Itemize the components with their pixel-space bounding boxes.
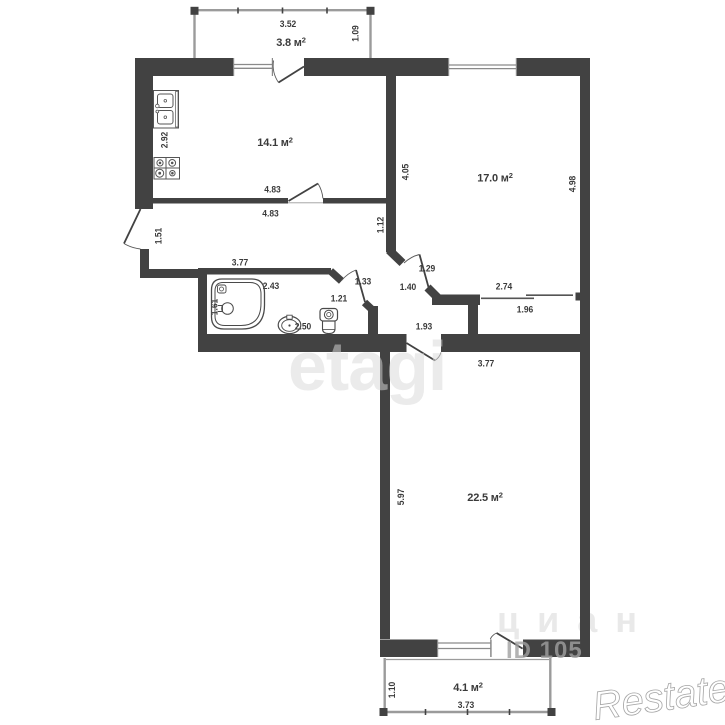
svg-text:3.73: 3.73 (458, 700, 475, 711)
svg-text:4.83: 4.83 (264, 185, 281, 196)
svg-text:4.1 м2: 4.1 м2 (453, 681, 483, 695)
svg-text:циан: циан (497, 599, 655, 640)
svg-text:4.98: 4.98 (568, 176, 579, 193)
svg-text:2.43: 2.43 (263, 281, 280, 292)
svg-text:1.29: 1.29 (419, 264, 436, 275)
svg-text:1.33: 1.33 (355, 277, 372, 288)
svg-text:1.10: 1.10 (387, 682, 398, 699)
svg-text:1.21: 1.21 (331, 294, 348, 305)
svg-text:3.52: 3.52 (280, 19, 297, 30)
svg-text:ID 105: ID 105 (506, 637, 583, 664)
svg-text:1.09: 1.09 (351, 25, 362, 42)
svg-text:1.51: 1.51 (154, 227, 165, 244)
svg-text:3.77: 3.77 (478, 359, 495, 370)
svg-text:1.12: 1.12 (376, 217, 387, 234)
svg-text:1.96: 1.96 (517, 305, 534, 316)
svg-text:3.77: 3.77 (232, 258, 249, 269)
svg-text:3.8 м2: 3.8 м2 (276, 36, 306, 50)
svg-text:22.5 м2: 22.5 м2 (467, 491, 502, 505)
svg-text:etagi: etagi (288, 327, 446, 405)
svg-text:4.83: 4.83 (262, 209, 279, 220)
svg-text:2.92: 2.92 (160, 132, 171, 149)
svg-text:5.97: 5.97 (396, 489, 407, 506)
svg-text:17.0 м2: 17.0 м2 (477, 171, 512, 185)
svg-text:2.74: 2.74 (496, 282, 513, 293)
svg-text:4.05: 4.05 (401, 163, 412, 180)
svg-text:1.40: 1.40 (400, 282, 417, 293)
svg-text:14.1 м2: 14.1 м2 (257, 136, 292, 150)
